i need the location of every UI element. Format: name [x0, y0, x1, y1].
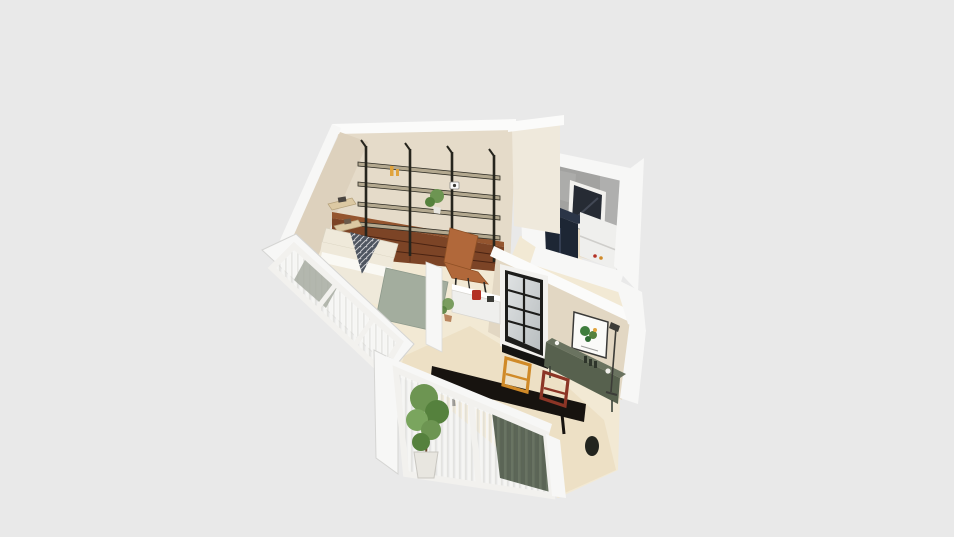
tree-pot: [414, 452, 438, 478]
corner-wall-column: [512, 120, 560, 234]
apartment-3d-render: [0, 0, 954, 537]
speaker-decor[interactable]: [450, 182, 459, 189]
counter-bottle: [584, 356, 587, 363]
tree-foliage: [412, 433, 430, 451]
black-framed-window[interactable]: [500, 264, 548, 369]
dark-stool[interactable]: [585, 436, 599, 456]
counter-cup: [555, 341, 559, 345]
counter-bottle: [589, 359, 592, 366]
counter-bottle: [594, 361, 597, 368]
art-leaf: [585, 336, 591, 342]
art-berry: [593, 328, 597, 332]
red-kettle[interactable]: [472, 290, 481, 300]
art-leaf: [580, 326, 590, 336]
cabinet-accent-dot-orange: [599, 256, 603, 260]
render-canvas: [0, 0, 954, 537]
table-leg: [562, 414, 564, 434]
divider-wall-stub: [426, 262, 442, 352]
island-dark-item: [487, 296, 494, 302]
counter-vase: [605, 368, 610, 373]
cabinet-accent-dot-red: [593, 254, 597, 258]
